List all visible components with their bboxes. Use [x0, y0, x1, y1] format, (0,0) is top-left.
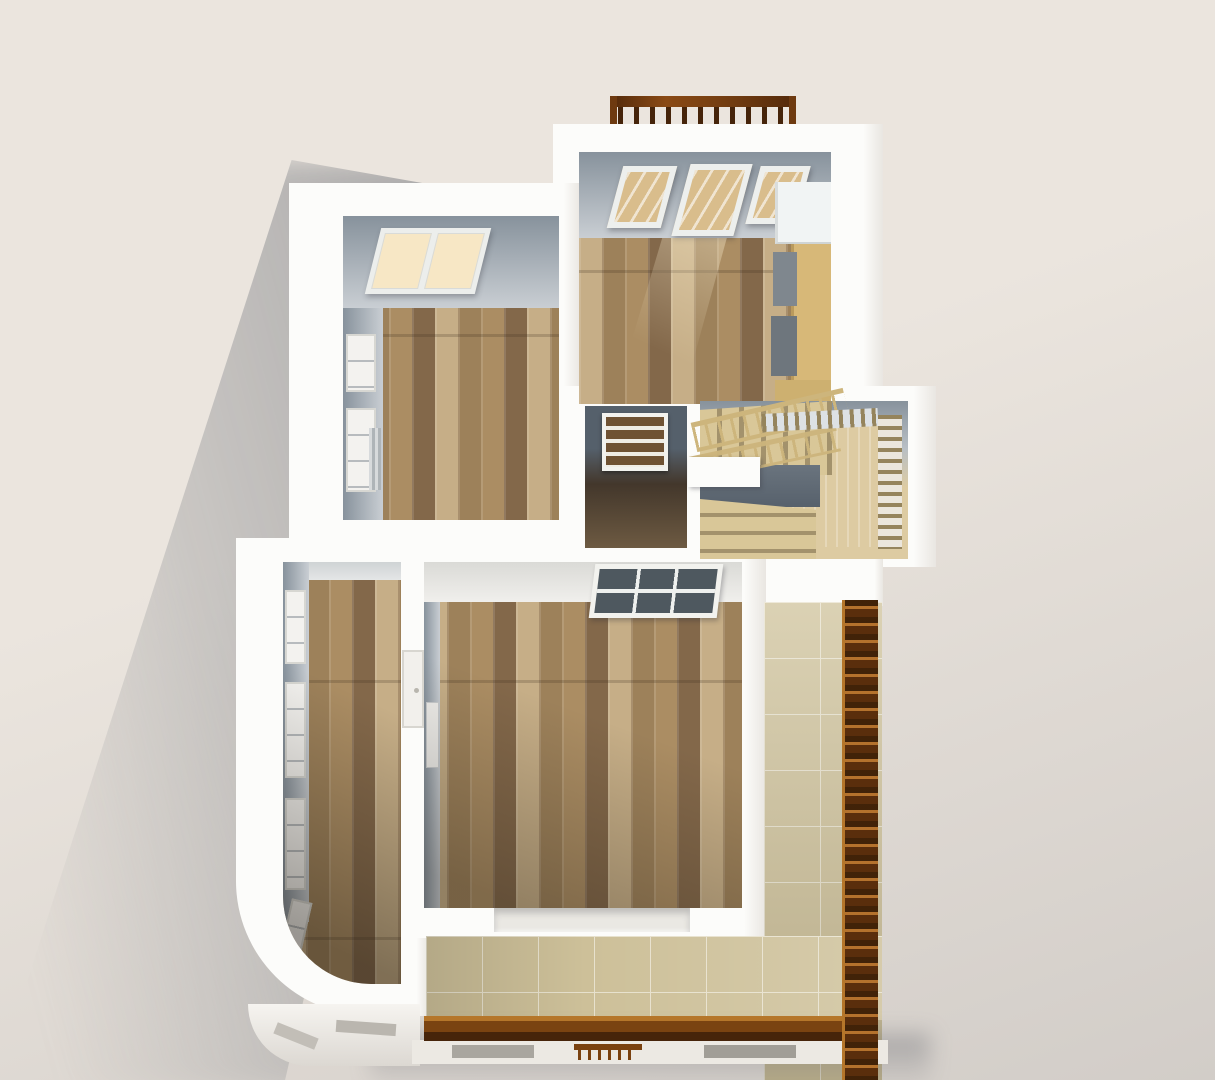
lower-floor-wall	[412, 1040, 888, 1064]
balcony-balusters	[578, 1050, 638, 1060]
terrace-tiles-bottom	[426, 936, 882, 1020]
living-side-window	[346, 334, 376, 392]
kitchen-appliance	[771, 316, 797, 376]
room-stairwell	[700, 401, 908, 559]
wall-stub	[688, 457, 760, 487]
lower-window-slot	[273, 1022, 318, 1050]
lower-window-slot	[336, 1020, 397, 1036]
radiator	[369, 428, 381, 490]
room-curved-corridor	[283, 562, 401, 984]
window-pane	[424, 233, 485, 289]
railing-post	[789, 96, 796, 124]
floorplan-render	[0, 0, 1215, 1080]
fridge	[775, 182, 831, 244]
hallway-door	[602, 413, 668, 471]
recessed-exterior-window	[494, 908, 690, 932]
lower-window-slot	[704, 1045, 796, 1058]
room-bedroom	[424, 562, 742, 908]
room-hallway	[585, 406, 687, 548]
kitchen-appliance	[773, 252, 797, 306]
terrace-railing-right	[842, 600, 878, 1080]
lower-window-slot	[452, 1045, 534, 1058]
terrace-railing-bottom	[424, 1016, 878, 1041]
railing-post	[610, 96, 617, 124]
shadow-overlay	[283, 562, 401, 984]
room-living	[343, 216, 559, 520]
railing-balusters	[618, 107, 788, 125]
room-kitchen	[579, 152, 831, 404]
connecting-door	[402, 650, 424, 728]
lower-floor-balcony	[574, 1044, 642, 1062]
window-pane	[371, 233, 432, 289]
baluster-screen	[878, 415, 902, 549]
hallway-door-panel	[606, 417, 664, 467]
railing-top-bar	[610, 96, 796, 107]
living-double-window	[365, 228, 491, 294]
shadow-overlay	[424, 562, 742, 908]
